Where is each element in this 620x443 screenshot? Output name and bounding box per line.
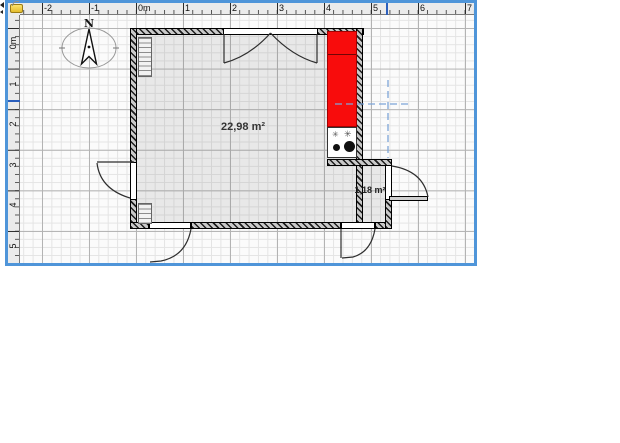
small-room-right-door-leaf[interactable] bbox=[389, 196, 428, 201]
h-ruler-position-marker bbox=[386, 3, 388, 15]
h-ruler-label: 0m bbox=[138, 3, 151, 15]
wall-left-upper[interactable] bbox=[130, 28, 137, 163]
room-small-area-label: 1,18 m² bbox=[341, 185, 399, 195]
bottom-door-panel[interactable] bbox=[149, 222, 191, 229]
wall-right[interactable] bbox=[356, 28, 363, 229]
burner-icon: ✳ bbox=[332, 131, 339, 139]
h-ruler-label: 6 bbox=[420, 3, 425, 15]
burner-plate-icon bbox=[344, 141, 355, 152]
wall-bottom-middle[interactable] bbox=[191, 222, 341, 229]
burner-plate-icon bbox=[333, 144, 340, 151]
wall-small-room-top[interactable] bbox=[327, 159, 392, 166]
radiator-top-left[interactable] bbox=[138, 37, 152, 77]
splitter-collapse-left-icon-small[interactable] bbox=[0, 10, 3, 14]
h-ruler-label: 7 bbox=[467, 3, 472, 15]
small-room-bottom-door-panel[interactable] bbox=[341, 222, 375, 229]
h-ruler-label: -1 bbox=[91, 3, 99, 15]
red-cabinet[interactable] bbox=[327, 31, 357, 127]
floor-plan-editor: -2 -1 0m 1 2 3 4 5 6 7 0m 1 2 3 4 5 ✳ ✳ bbox=[0, 0, 620, 443]
burner-icon: ✳ bbox=[344, 130, 352, 139]
double-door-opening[interactable] bbox=[224, 28, 317, 35]
h-ruler-label: 1 bbox=[185, 3, 190, 15]
h-ruler-label: -2 bbox=[44, 3, 52, 15]
h-ruler-label: 2 bbox=[232, 3, 237, 15]
plan-icon-curl bbox=[12, 1, 19, 6]
splitter-collapse-left-icon[interactable] bbox=[0, 2, 4, 8]
h-ruler-label: 4 bbox=[326, 3, 331, 15]
left-door-opening[interactable] bbox=[130, 163, 137, 199]
horizontal-ruler bbox=[20, 3, 474, 15]
radiator-bottom-left[interactable] bbox=[138, 203, 152, 224]
h-ruler-label: 5 bbox=[373, 3, 378, 15]
wall-small-room-right[interactable] bbox=[385, 199, 392, 229]
vertical-ruler bbox=[8, 15, 20, 263]
room-main-area-label: 22,98 m² bbox=[193, 121, 293, 133]
wall-top-left[interactable] bbox=[130, 28, 224, 35]
h-ruler-label: 3 bbox=[279, 3, 284, 15]
cabinet-divider-line bbox=[328, 54, 356, 55]
stove[interactable]: ✳ ✳ bbox=[327, 127, 357, 158]
